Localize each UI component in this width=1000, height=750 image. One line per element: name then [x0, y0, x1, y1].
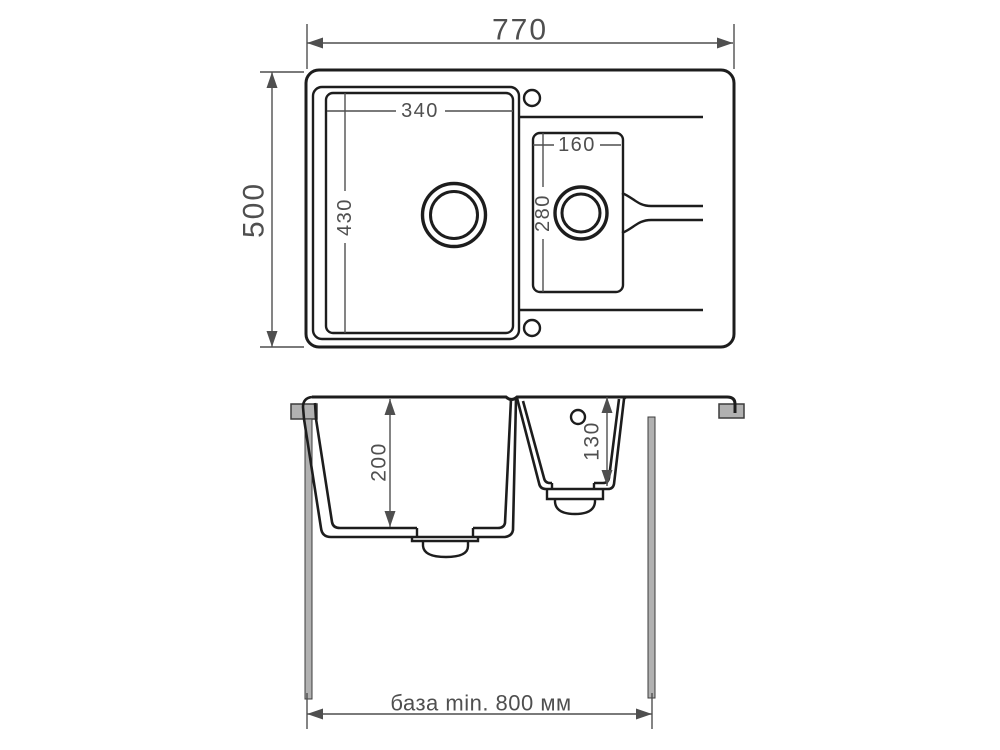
main-bowl-section-inner	[315, 399, 511, 528]
arrowhead-up-130	[602, 397, 613, 413]
countertop-cut-right	[719, 404, 744, 418]
arrowhead-down-500	[267, 331, 278, 347]
dimension-labels: 770 500 340 430 160 280 200 130 база min…	[238, 14, 604, 716]
label-small-bowl-depth: 130	[581, 421, 604, 461]
label-small-bowl-width: 160	[558, 134, 596, 156]
label-main-bowl-width: 340	[401, 100, 439, 122]
label-main-bowl-length: 430	[334, 198, 356, 236]
section-view	[291, 397, 744, 729]
arrowhead-left-770	[307, 38, 323, 49]
label-small-bowl-length: 280	[532, 194, 554, 232]
label-main-bowl-depth: 200	[368, 442, 391, 482]
main-drain-fitting-section	[412, 528, 478, 557]
label-base-cabinet-note: база min. 800 мм	[390, 691, 571, 716]
arrowhead-down-200	[385, 511, 396, 527]
main-drain-inner	[431, 192, 478, 239]
drain-channel-flare-lower	[622, 220, 703, 233]
drawing-svg: 770 500 340 430 160 280 200 130 база min…	[0, 0, 1000, 750]
label-overall-width: 770	[492, 14, 548, 47]
top-view-dimensions	[260, 24, 734, 347]
arrowhead-up-500	[267, 72, 278, 88]
cabinet-panel-right	[648, 417, 655, 698]
arrowhead-left-800	[307, 709, 323, 720]
arrowhead-right-800	[636, 709, 652, 720]
arrowhead-up-200	[385, 399, 396, 415]
sink-technical-drawing: 770 500 340 430 160 280 200 130 база min…	[0, 0, 1000, 750]
main-bowl-section-outer	[303, 397, 516, 537]
faucet-hole-bottom	[524, 320, 540, 336]
arrowhead-right-770	[717, 38, 733, 49]
label-overall-depth: 500	[238, 182, 271, 238]
faucet-hole-top	[524, 90, 540, 106]
drain-channel-flare-upper	[622, 193, 703, 206]
small-drain-fitting-section	[547, 483, 603, 514]
small-drain-inner	[562, 194, 600, 232]
